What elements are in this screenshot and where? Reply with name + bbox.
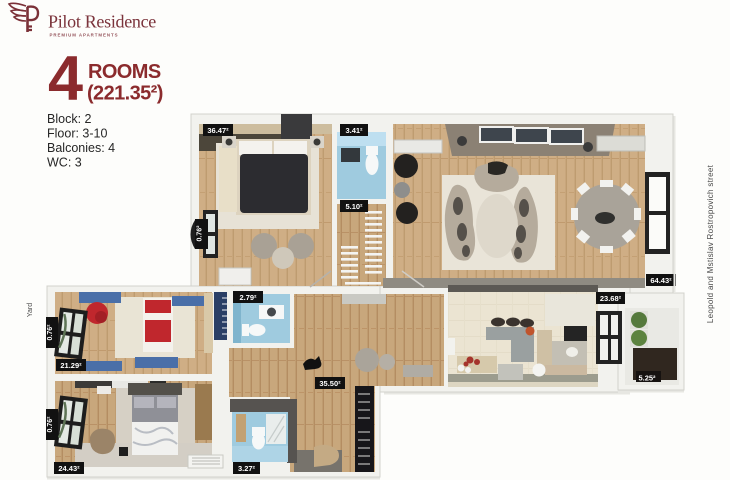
svg-text:36.47²: 36.47²: [207, 126, 229, 135]
svg-text:Yard: Yard: [27, 303, 34, 317]
svg-text:WC: 3: WC: 3: [47, 156, 82, 170]
svg-text:3.27²: 3.27²: [238, 464, 256, 473]
svg-text:21.29²: 21.29²: [60, 361, 82, 370]
svg-text:Balconies: 4: Balconies: 4: [47, 141, 115, 155]
svg-text:0.76²: 0.76²: [197, 225, 204, 242]
svg-text:ROOMS: ROOMS: [88, 61, 161, 83]
svg-text:0.76²: 0.76²: [47, 324, 54, 341]
svg-text:64.43²: 64.43²: [650, 276, 672, 285]
svg-text:4: 4: [48, 44, 83, 114]
svg-text:5.10²: 5.10²: [345, 202, 363, 211]
svg-text:Pilot Residence: Pilot Residence: [48, 12, 156, 32]
svg-text:23.68²: 23.68²: [600, 294, 622, 303]
svg-text:24.43²: 24.43²: [58, 464, 80, 473]
svg-text:3.41²: 3.41²: [345, 126, 363, 135]
svg-text:2.79²: 2.79²: [239, 293, 257, 302]
svg-text:Floor: 3-10: Floor: 3-10: [47, 127, 107, 141]
svg-text:5.25²: 5.25²: [638, 374, 656, 383]
svg-text:Leopold and Mstislav Rostropov: Leopold and Mstislav Rostropovich street: [706, 164, 715, 323]
svg-text:(221.35²): (221.35²): [87, 83, 163, 105]
svg-text:PREMIUM APARTMENTS: PREMIUM APARTMENTS: [50, 33, 119, 38]
svg-text:0.76²: 0.76²: [47, 416, 54, 433]
svg-text:Block: 2: Block: 2: [47, 112, 92, 126]
svg-text:35.50²: 35.50²: [319, 379, 341, 388]
